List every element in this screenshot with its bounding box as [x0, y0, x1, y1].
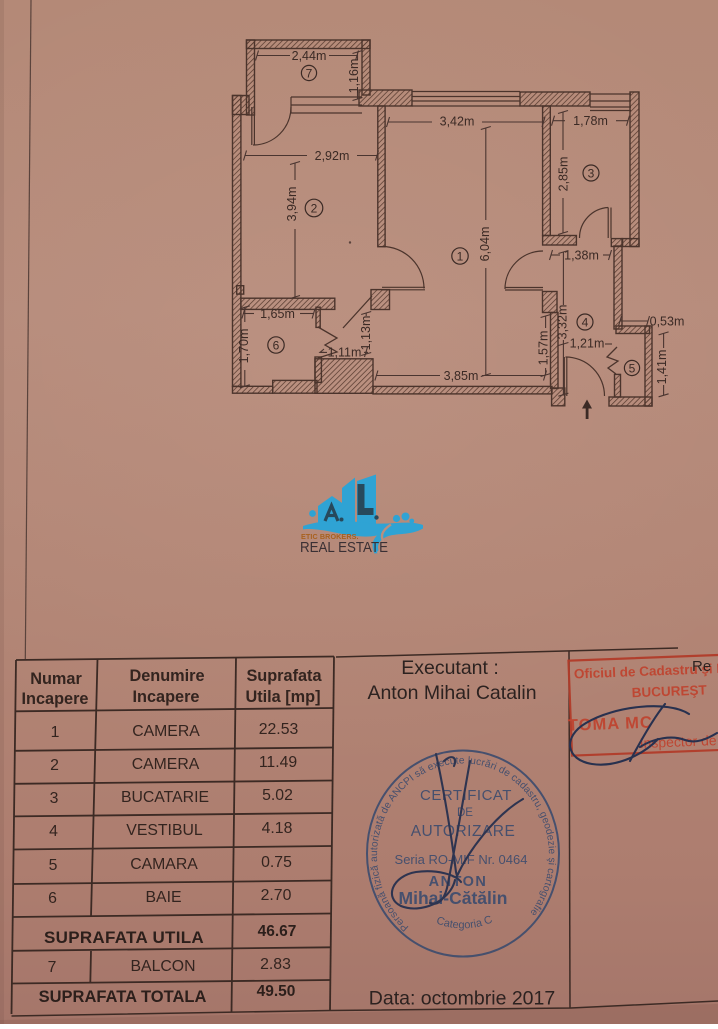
- svg-text:5: 5: [49, 857, 58, 874]
- svg-text:VESTIBUL: VESTIBUL: [126, 822, 203, 839]
- svg-text:1,78m: 1,78m: [573, 114, 608, 128]
- svg-text:1,13m: 1,13m: [359, 316, 373, 351]
- svg-text:1,21m: 1,21m: [570, 337, 605, 351]
- svg-text:4: 4: [49, 823, 58, 840]
- svg-text:Executant :: Executant :: [401, 657, 499, 679]
- svg-text:Denumire: Denumire: [129, 667, 204, 685]
- svg-text:7: 7: [48, 959, 57, 976]
- svg-text:1: 1: [51, 724, 60, 741]
- svg-text:CAMERA: CAMERA: [132, 756, 200, 773]
- svg-text:Incapere: Incapere: [22, 690, 89, 708]
- svg-text:BUCATARIE: BUCATARIE: [121, 789, 209, 806]
- svg-text:Incapere: Incapere: [133, 688, 200, 706]
- svg-text:CAMARA: CAMARA: [130, 856, 198, 873]
- svg-text:2.83: 2.83: [260, 956, 291, 973]
- svg-text:2: 2: [50, 757, 59, 774]
- svg-text:TOMA MC: TOMA MC: [568, 714, 654, 735]
- svg-text:Anton Mihai Catalin: Anton Mihai Catalin: [367, 682, 536, 704]
- svg-text:1,38m: 1,38m: [564, 249, 599, 263]
- svg-text:Re: Re: [692, 658, 711, 675]
- svg-text:2,44m: 2,44m: [292, 49, 327, 63]
- svg-text:Data: octombrie 2017: Data: octombrie 2017: [369, 988, 555, 1010]
- svg-text:4.18: 4.18: [262, 820, 293, 837]
- svg-text:1,70m: 1,70m: [237, 329, 251, 364]
- svg-text:REAL ESTATE: REAL ESTATE: [300, 539, 388, 556]
- svg-text:SUPRAFATA UTILA: SUPRAFATA UTILA: [44, 928, 204, 947]
- svg-text:0,53m: 0,53m: [650, 315, 685, 329]
- svg-text:0.75: 0.75: [261, 854, 292, 871]
- svg-text:22.53: 22.53: [259, 721, 299, 738]
- svg-text:49.50: 49.50: [257, 983, 296, 1000]
- svg-text:Mihai-Cătălin: Mihai-Cătălin: [399, 888, 508, 908]
- svg-text:7: 7: [306, 67, 313, 81]
- svg-text:2,92m: 2,92m: [315, 149, 350, 163]
- svg-text:SUPRAFATA TOTALA: SUPRAFATA TOTALA: [39, 988, 207, 1006]
- svg-text:1,65m: 1,65m: [260, 307, 295, 321]
- svg-text:3,42m: 3,42m: [440, 115, 475, 129]
- svg-text:CAMERA: CAMERA: [132, 723, 200, 740]
- svg-text:AUTORIZARE: AUTORIZARE: [411, 823, 516, 840]
- svg-text:BUCUREŞT: BUCUREŞT: [631, 682, 707, 700]
- svg-text:3: 3: [588, 167, 595, 181]
- svg-text:1,11m: 1,11m: [328, 346, 362, 360]
- svg-text:2,85m: 2,85m: [557, 157, 571, 192]
- svg-text:3,32m: 3,32m: [556, 305, 570, 340]
- svg-text:5: 5: [629, 362, 636, 376]
- svg-text:6: 6: [48, 890, 57, 907]
- svg-text:4: 4: [582, 316, 589, 330]
- svg-text:2: 2: [311, 202, 318, 216]
- svg-text:6: 6: [273, 339, 280, 353]
- svg-text:46.67: 46.67: [258, 923, 297, 940]
- svg-text:3,94m: 3,94m: [285, 187, 299, 222]
- svg-text:1,16m: 1,16m: [347, 59, 361, 94]
- svg-text:1: 1: [457, 250, 464, 264]
- svg-text:Numar: Numar: [30, 670, 82, 688]
- svg-text:Suprafata: Suprafata: [246, 667, 322, 685]
- svg-text:Utila [mp]: Utila [mp]: [245, 688, 320, 706]
- svg-text:Categoria C: Categoria C: [435, 914, 494, 932]
- svg-text:1,57m: 1,57m: [537, 331, 551, 366]
- svg-text:6,04m: 6,04m: [478, 227, 492, 262]
- svg-text:11.49: 11.49: [259, 754, 298, 771]
- svg-text:1,41m: 1,41m: [655, 350, 669, 385]
- svg-text:BAIE: BAIE: [146, 889, 182, 906]
- svg-text:2.70: 2.70: [261, 887, 292, 904]
- svg-text:3: 3: [50, 790, 59, 807]
- svg-text:Seria RO-MIF Nr. 0464: Seria RO-MIF Nr. 0464: [395, 852, 528, 867]
- svg-text:BALCON: BALCON: [131, 958, 196, 975]
- svg-text:5.02: 5.02: [262, 787, 293, 804]
- svg-text:3,85m: 3,85m: [444, 369, 479, 383]
